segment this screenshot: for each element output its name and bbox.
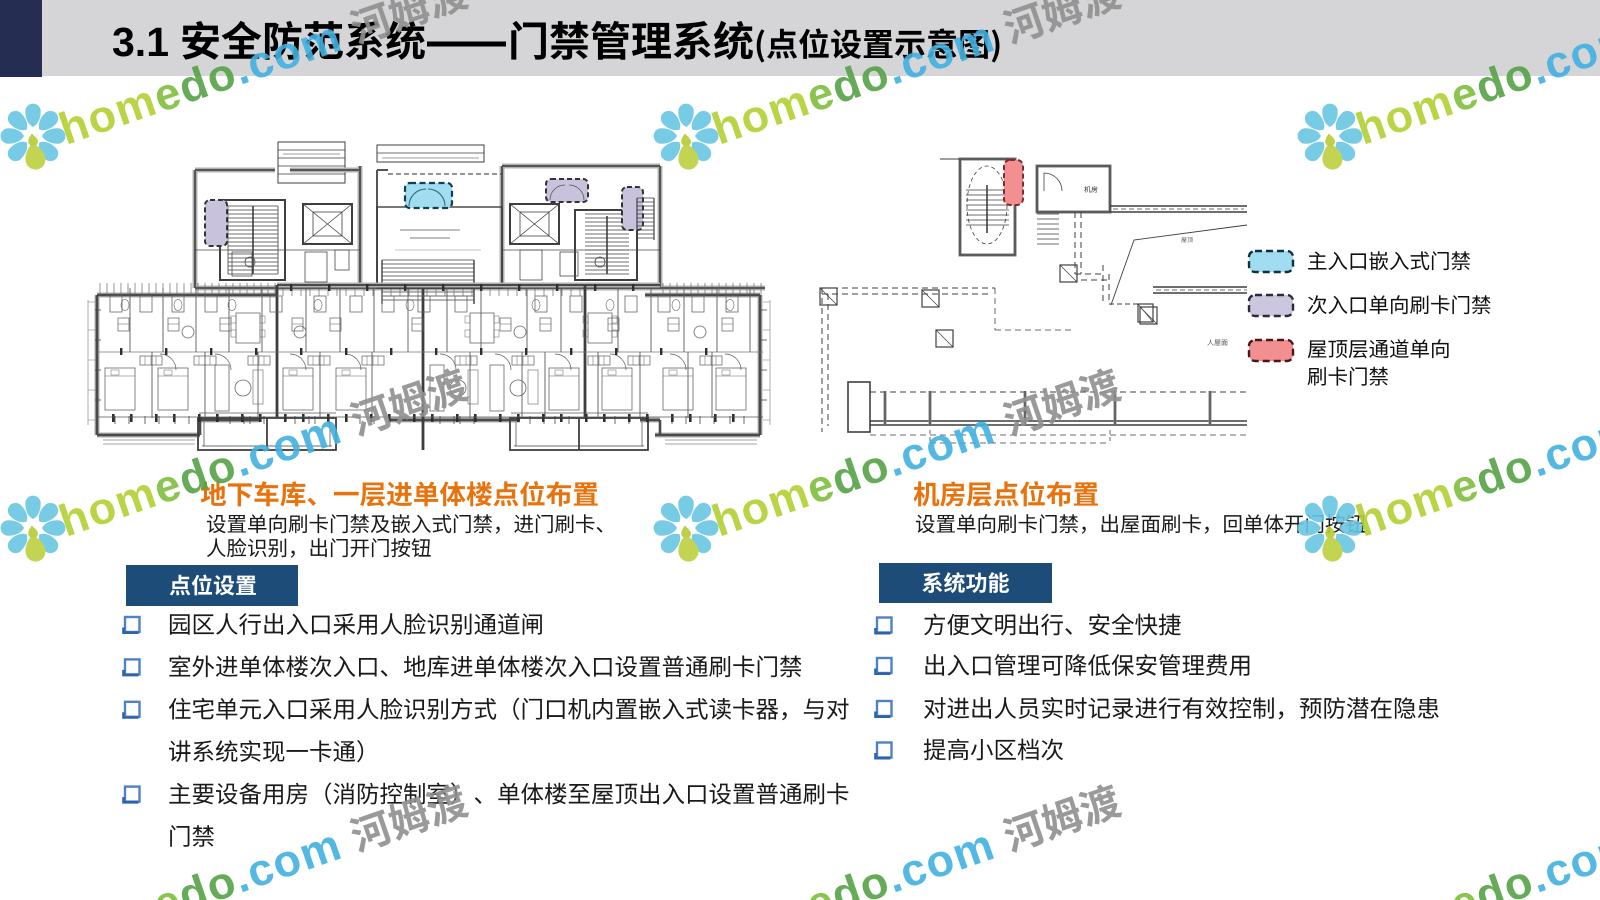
svg-text:homedo.com: homedo.com — [1350, 818, 1600, 900]
svg-text:homedo.com: homedo.com — [706, 402, 1002, 546]
svg-text:3.1: 3.1 — [112, 19, 169, 65]
svg-text:homedo.com: homedo.com — [706, 818, 1002, 900]
svg-text:homedo.com: homedo.com — [1350, 402, 1600, 546]
